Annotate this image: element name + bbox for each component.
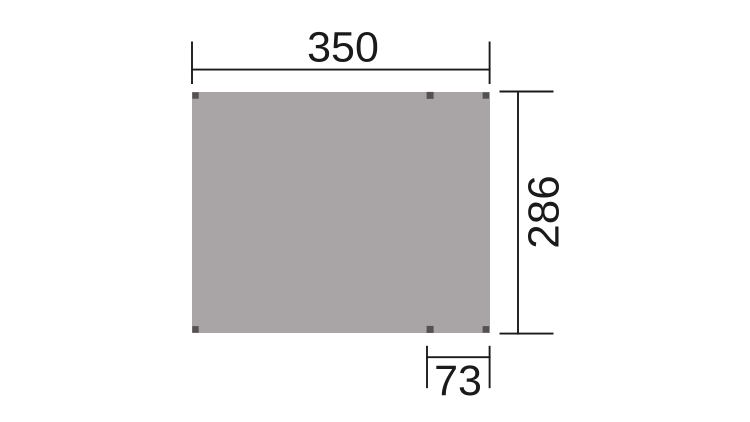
svg-text:73: 73: [434, 357, 482, 405]
svg-text:350: 350: [307, 24, 379, 72]
svg-text:286: 286: [519, 175, 568, 248]
